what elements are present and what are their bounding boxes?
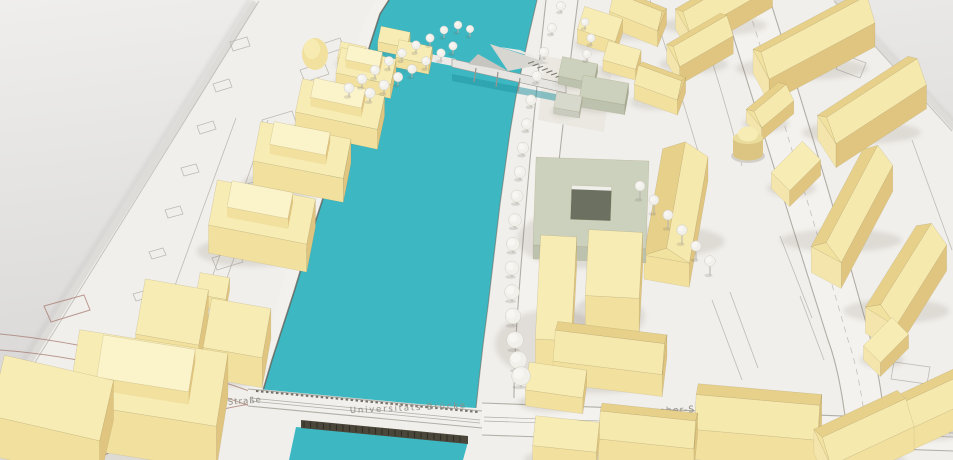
- building: [525, 362, 586, 414]
- building: [694, 384, 822, 460]
- building: [533, 416, 600, 460]
- building: [302, 38, 328, 70]
- model-scene: -Straße Universitäts Brücke Blasius-Hueb…: [0, 0, 953, 460]
- building: [585, 230, 642, 335]
- architectural-model-photo: -Straße Universitäts Brücke Blasius-Hueb…: [0, 0, 953, 460]
- building: [598, 403, 697, 460]
- building: [554, 92, 582, 118]
